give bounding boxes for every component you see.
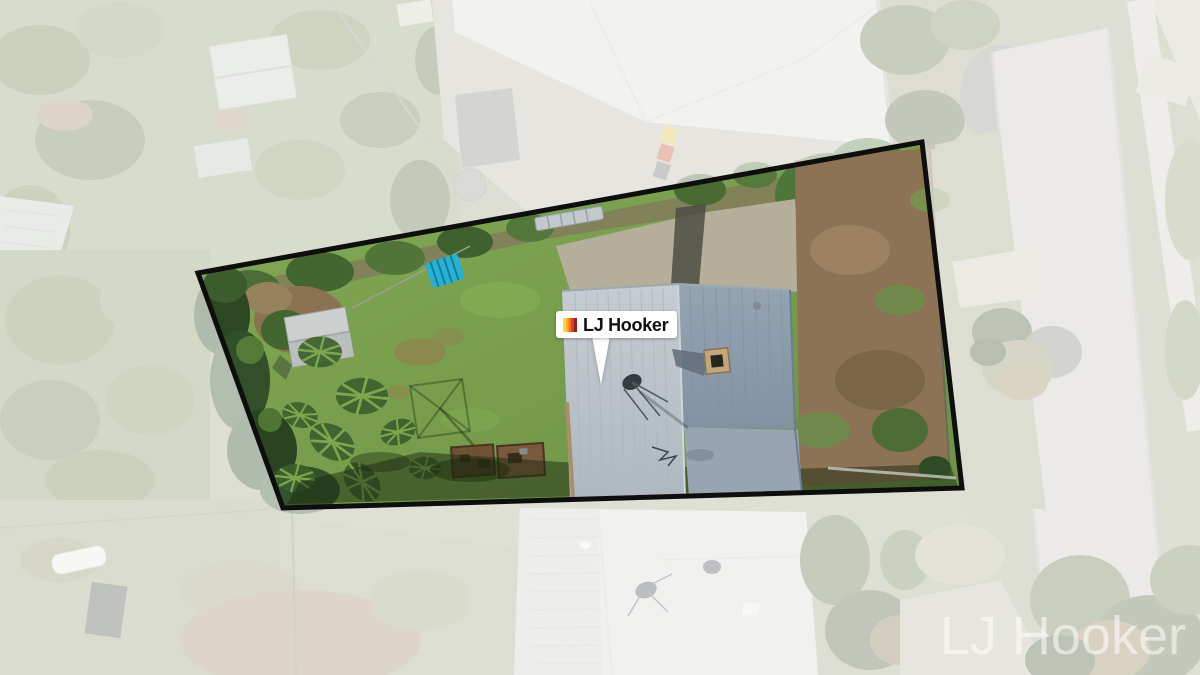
agency-pin: LJ Hooker <box>556 311 677 338</box>
lj-hooker-logo-icon <box>563 318 577 332</box>
agency-pin-tail <box>592 336 610 385</box>
agency-pin-label: LJ Hooker <box>583 316 668 334</box>
watermark: LJ Hooker <box>940 609 1186 663</box>
aerial-photo: LJ Hooker LJ Hooker <box>0 0 1200 675</box>
